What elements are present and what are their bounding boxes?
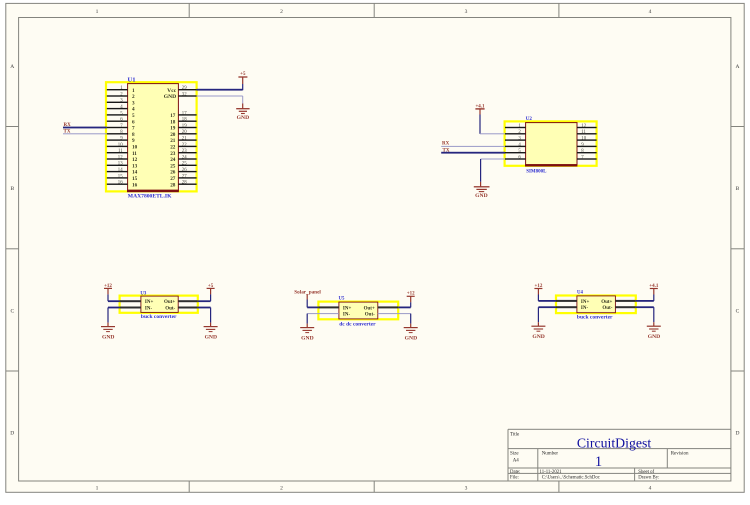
svg-text:IN+: IN+ (145, 300, 154, 305)
svg-text:IN-: IN- (145, 306, 153, 311)
svg-text:9: 9 (132, 138, 135, 144)
svg-text:Number: Number (542, 451, 559, 456)
svg-text:26: 26 (170, 170, 176, 176)
svg-text:14: 14 (118, 168, 123, 173)
svg-text:U2: U2 (526, 117, 533, 122)
svg-text:1: 1 (132, 88, 135, 94)
svg-text:Size: Size (510, 451, 519, 456)
svg-text:13: 13 (118, 162, 123, 167)
svg-text:12: 12 (132, 157, 138, 163)
svg-text:GND: GND (164, 94, 176, 100)
svg-text:16: 16 (118, 181, 123, 186)
svg-text:1: 1 (96, 486, 99, 492)
svg-text:IN-: IN- (581, 306, 589, 311)
svg-text:RX: RX (442, 142, 450, 147)
svg-text:23: 23 (182, 149, 187, 154)
svg-text:7: 7 (132, 126, 135, 132)
svg-text:3: 3 (465, 9, 468, 15)
svg-text:IN+: IN+ (581, 300, 590, 305)
svg-text:U3: U3 (140, 291, 146, 296)
svg-text:5: 5 (132, 113, 135, 119)
svg-text:GND: GND (102, 334, 114, 340)
svg-text:Title: Title (510, 432, 520, 437)
svg-text:24: 24 (170, 157, 176, 163)
svg-text:C: C (736, 308, 740, 314)
svg-text:A: A (10, 64, 14, 70)
svg-text:Out+: Out+ (364, 306, 375, 311)
svg-text:D: D (736, 431, 740, 437)
svg-text:4: 4 (649, 486, 652, 492)
svg-text:27: 27 (182, 174, 187, 179)
svg-text:Out-: Out- (365, 313, 375, 318)
svg-text:27: 27 (170, 176, 176, 182)
svg-text:B: B (736, 186, 740, 192)
svg-text:32: 32 (182, 92, 187, 97)
svg-text:buck converter: buck converter (577, 315, 613, 321)
svg-text:17: 17 (170, 113, 176, 119)
svg-text:14: 14 (132, 170, 138, 176)
svg-text:25: 25 (182, 162, 187, 167)
svg-text:GND: GND (205, 334, 217, 340)
svg-text:21: 21 (182, 137, 187, 142)
svg-text:2: 2 (280, 9, 283, 15)
svg-text:20: 20 (170, 132, 176, 138)
svg-text:3: 3 (132, 100, 135, 106)
svg-text:28: 28 (170, 182, 176, 188)
svg-text:15: 15 (118, 174, 123, 179)
svg-text:C: C (10, 308, 14, 314)
svg-text:3: 3 (465, 486, 468, 492)
svg-text:26: 26 (182, 168, 187, 173)
svg-text:CircuitDigest: CircuitDigest (577, 435, 652, 450)
svg-text:16: 16 (132, 182, 138, 188)
svg-text:+5: +5 (240, 72, 246, 77)
svg-text:11: 11 (581, 130, 586, 135)
svg-text:IN-: IN- (343, 313, 351, 318)
svg-text:10: 10 (118, 143, 123, 148)
svg-text:Out-: Out- (165, 306, 175, 311)
svg-text:GND: GND (405, 335, 417, 341)
svg-text:10: 10 (581, 137, 586, 142)
svg-text:21: 21 (170, 138, 176, 144)
svg-text:2: 2 (132, 94, 135, 100)
svg-text:GND: GND (532, 334, 544, 340)
svg-text:Drawn By:: Drawn By: (638, 476, 659, 481)
svg-text:GND: GND (237, 115, 249, 121)
svg-text:11: 11 (132, 151, 137, 157)
svg-text:4: 4 (649, 9, 652, 15)
svg-text:28: 28 (182, 181, 187, 186)
svg-text:Out+: Out+ (164, 300, 175, 305)
svg-text:GND: GND (475, 193, 487, 199)
svg-text:B: B (10, 186, 14, 192)
svg-text:10: 10 (132, 145, 138, 151)
svg-text:Date:: Date: (510, 470, 520, 475)
svg-text:U1: U1 (128, 76, 136, 83)
svg-text:22: 22 (170, 145, 176, 151)
svg-text:C:\Users\..\Schematic.SchDoc: C:\Users\..\Schematic.SchDoc (542, 476, 600, 481)
svg-text:19: 19 (170, 126, 176, 132)
svg-text:17: 17 (182, 111, 187, 116)
svg-text:8: 8 (132, 132, 135, 138)
svg-text:Vcc: Vcc (167, 88, 177, 94)
svg-text:U5: U5 (339, 297, 345, 302)
svg-text:buck converter: buck converter (141, 314, 177, 320)
svg-text:GND: GND (301, 335, 313, 341)
svg-text:1: 1 (96, 9, 99, 15)
svg-text:4: 4 (132, 107, 135, 113)
svg-text:Solar_panel: Solar_panel (294, 289, 321, 295)
svg-text:6: 6 (132, 119, 135, 125)
svg-text:GND: GND (648, 334, 660, 340)
svg-text:MAX7800ETL.IK: MAX7800ETL.IK (128, 194, 172, 200)
svg-text:20: 20 (182, 130, 187, 135)
svg-text:SIM800L: SIM800L (526, 169, 547, 174)
svg-text:24: 24 (182, 155, 187, 160)
svg-text:29: 29 (182, 86, 187, 91)
svg-text:A4: A4 (513, 458, 520, 463)
svg-text:U4: U4 (577, 291, 583, 296)
svg-text:File:: File: (510, 476, 519, 481)
svg-text:23: 23 (170, 151, 176, 157)
svg-text:1: 1 (595, 454, 602, 470)
svg-text:15: 15 (132, 176, 138, 182)
svg-text:18: 18 (182, 118, 187, 123)
svg-text:D: D (10, 431, 14, 437)
svg-text:18: 18 (170, 119, 176, 125)
svg-text:13: 13 (132, 163, 138, 169)
svg-text:11-11-2021: 11-11-2021 (540, 470, 563, 475)
svg-text:Sheet of: Sheet of (638, 470, 654, 475)
svg-text:12: 12 (581, 124, 586, 129)
svg-text:25: 25 (170, 163, 176, 169)
svg-text:Out-: Out- (602, 306, 612, 311)
svg-text:A: A (736, 64, 740, 70)
svg-text:IN+: IN+ (343, 306, 352, 311)
svg-text:19: 19 (182, 124, 187, 129)
svg-text:12: 12 (118, 155, 123, 160)
svg-text:Out+: Out+ (601, 300, 612, 305)
svg-text:11: 11 (118, 149, 123, 154)
svg-text:22: 22 (182, 143, 187, 148)
svg-text:dc dc converter: dc dc converter (339, 322, 376, 328)
svg-text:2: 2 (280, 486, 283, 492)
svg-text:Revision: Revision (671, 451, 689, 456)
